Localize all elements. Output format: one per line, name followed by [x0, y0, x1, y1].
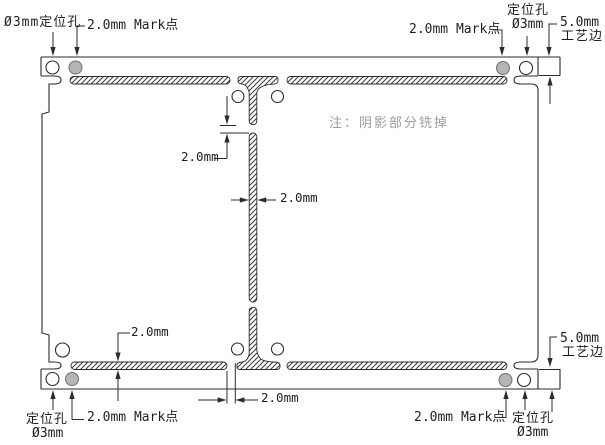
label-top-right-edge-1: 5.0mm — [560, 16, 599, 29]
milled-slot-top-center-t — [238, 77, 278, 125]
positioning-holes — [46, 61, 533, 387]
milling-note: 注：阴影部分铣掉 — [329, 117, 449, 130]
positioning-hole-top-right — [520, 62, 533, 75]
tooling-hole-top-center-right — [272, 91, 284, 103]
mark-point-top-left — [69, 61, 82, 74]
milled-slot-bottom-center-t — [237, 307, 280, 369]
label-bottom-right-mark: 2.0mm Mark点 — [414, 411, 505, 424]
label-top-left-mark: 2.0mm Mark点 — [87, 19, 178, 32]
label-top-right-mark: 2.0mm Mark点 — [409, 23, 500, 36]
bottom-rail-right-end — [539, 369, 560, 389]
mark-point-bottom-left — [66, 373, 79, 386]
mark-point-top-right — [497, 62, 510, 75]
positioning-hole-top-left — [46, 61, 59, 74]
tooling-hole-bottom-left-board — [56, 343, 70, 357]
milled-slot-bottom-right — [287, 362, 507, 370]
pcb-panel-drawing: Ø3mm定位孔 2.0mm Mark点 2.0mm Mark点 定位孔 Ø3mm… — [0, 0, 605, 445]
positioning-hole-bottom-right — [518, 374, 531, 387]
board-right-edge-with-notches — [514, 76, 538, 369]
milled-slot-top-left — [70, 77, 230, 85]
milled-slot-vertical — [249, 133, 257, 302]
milled-slot-top-right — [287, 77, 507, 85]
label-bottom-right-hole-2: Ø3mm — [517, 426, 548, 439]
dim-bottom-slot-width: 2.0mm — [131, 326, 169, 339]
mark-point-bottom-right — [499, 374, 512, 387]
label-bottom-left-mark: 2.0mm Mark点 — [87, 411, 178, 424]
tooling-hole-top-center-left — [232, 91, 244, 103]
label-top-right-edge-2: 工艺边 — [561, 30, 603, 43]
tooling-hole-bottom-center-right — [272, 343, 284, 355]
dim-bottom-tab-gap: 2.0mm — [261, 392, 299, 405]
label-bottom-right-edge-2: 工艺边 — [562, 346, 604, 359]
label-bottom-right-hole-1: 定位孔 — [512, 412, 554, 425]
dimension-arrowheads — [50, 47, 554, 403]
label-top-right-hole-2: Ø3mm — [512, 18, 543, 31]
board-left-edge-with-notches — [41, 76, 61, 369]
dim-slot-width: 2.0mm — [280, 192, 318, 205]
panel-geometry — [0, 0, 605, 445]
label-top-right-hole-1: 定位孔 — [507, 4, 549, 17]
positioning-hole-bottom-left — [46, 373, 59, 386]
milled-slot-bottom-left — [71, 362, 227, 370]
label-bottom-right-edge-1: 5.0mm — [560, 332, 599, 345]
label-top-left-hole: Ø3mm定位孔 — [4, 16, 81, 29]
panel-outline — [41, 57, 560, 389]
dim-center-tab-gap: 2.0mm — [181, 151, 219, 164]
label-bottom-left-hole-2: Ø3mm — [32, 427, 63, 440]
tooling-hole-bottom-center-left — [232, 343, 244, 355]
top-rail-right-end — [539, 57, 560, 76]
label-bottom-left-hole-1: 定位孔 — [26, 413, 68, 426]
